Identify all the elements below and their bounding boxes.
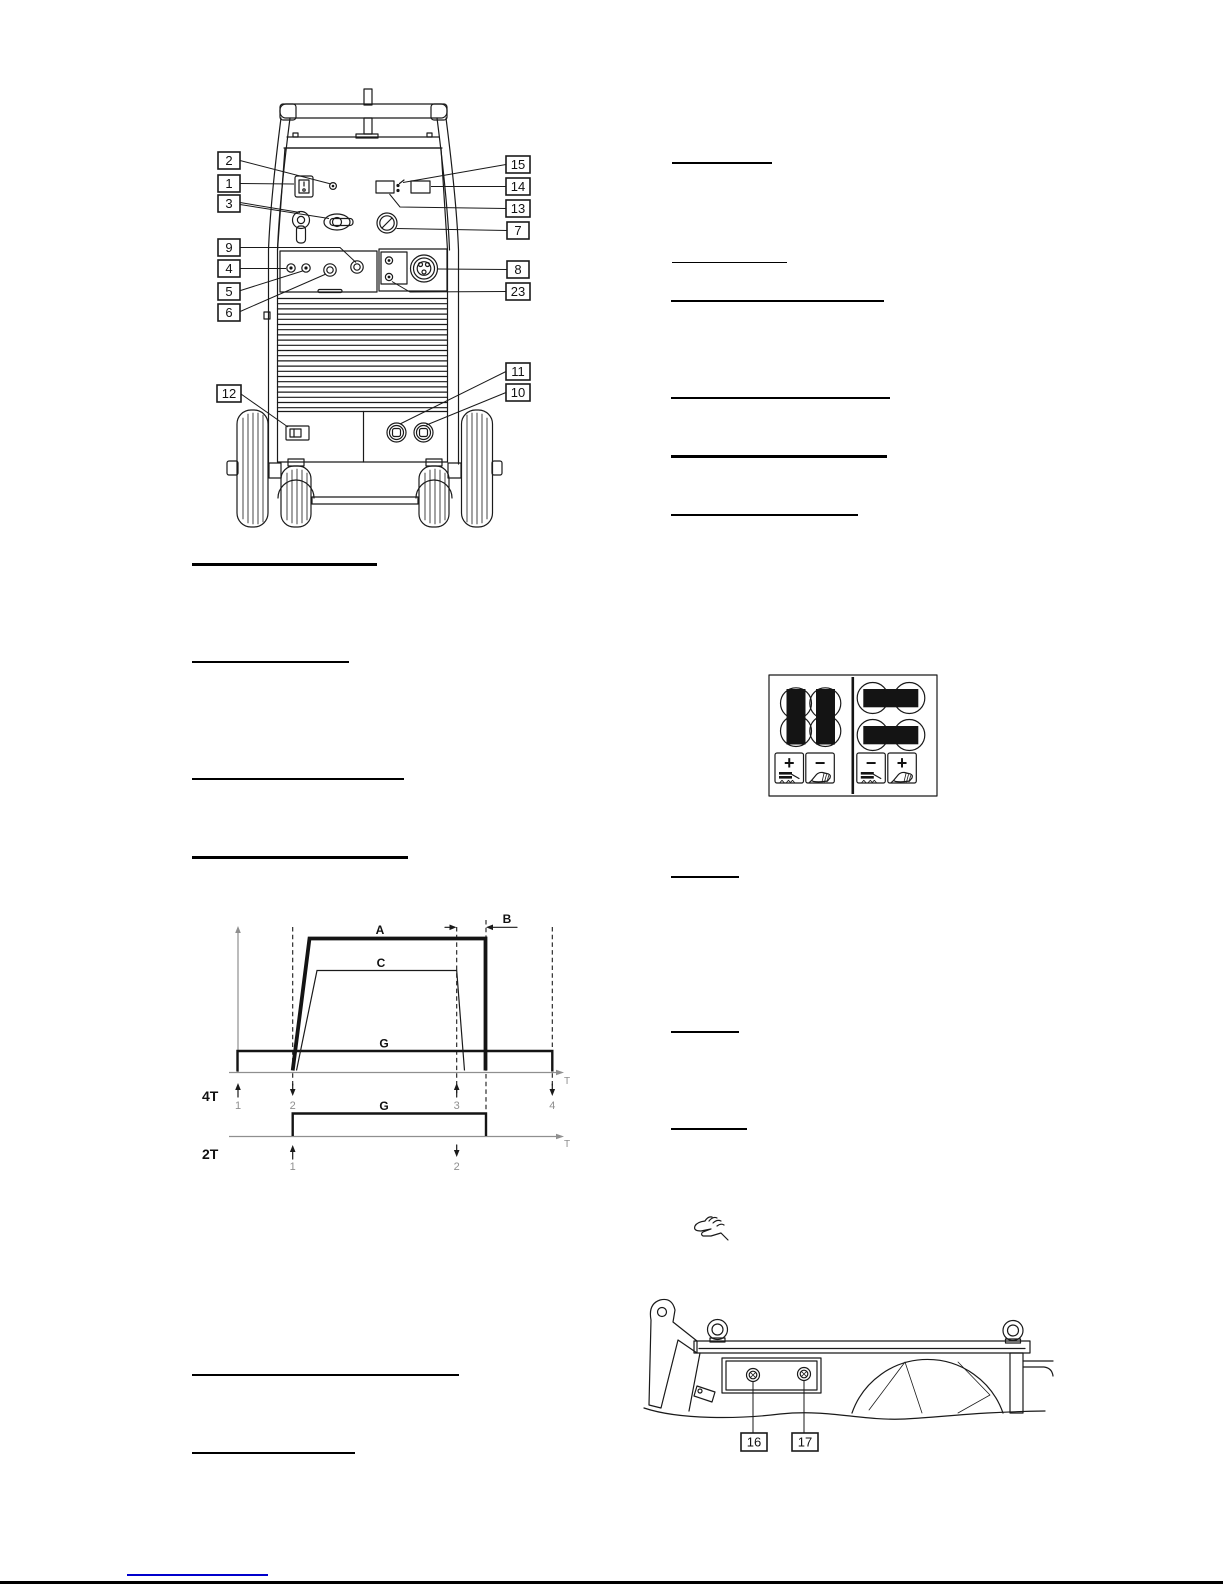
callout-label-8: 8 xyxy=(514,262,521,277)
machine-front-diagram: 2 1 3 9 4 5 6 12 15 14 xyxy=(217,89,530,527)
timing-diagram: A C G B G T T 4T 2T 1 2 3 4 1 2 xyxy=(202,912,570,1173)
torn-edge xyxy=(644,1408,1045,1419)
callout-1: 1 xyxy=(218,175,240,192)
footer-rule xyxy=(0,1581,1223,1584)
wheels xyxy=(227,410,502,527)
marker-4t-4: 4 xyxy=(549,1100,555,1112)
footer-link[interactable] xyxy=(127,1574,268,1576)
polarity-rollers-left xyxy=(781,688,841,747)
curve-c xyxy=(297,971,465,1071)
t-axis-label-lower: T xyxy=(564,1139,570,1150)
heading-rule-right-8 xyxy=(671,1031,739,1033)
machine-cabinet xyxy=(264,148,448,462)
t-axis-label-upper: T xyxy=(564,1076,570,1087)
callout-3: 3 xyxy=(218,195,240,212)
handle-arm xyxy=(649,1299,715,1408)
electrode-icon xyxy=(779,772,799,783)
marker-2t-1: 1 xyxy=(290,1161,296,1173)
heading-rule-left-5 xyxy=(192,1374,459,1376)
callout-9: 9 xyxy=(218,239,240,256)
heading-rule-left-3 xyxy=(192,778,404,780)
dinse-socket-right xyxy=(414,423,433,442)
torch-euro-connector xyxy=(411,255,438,282)
marker-4t-1: 1 xyxy=(235,1100,241,1112)
callout-12: 12 xyxy=(217,385,241,402)
callout-23: 23 xyxy=(506,283,530,300)
callout-13: 13 xyxy=(506,200,530,217)
heading-rule-left-1 xyxy=(192,563,377,566)
marker-4t-2: 2 xyxy=(290,1100,296,1112)
callout-7: 7 xyxy=(507,222,529,239)
polarity-rollers-right xyxy=(857,683,925,751)
base-connector-17 xyxy=(798,1368,811,1381)
mode-4t-label: 4T xyxy=(202,1088,219,1104)
callout-label-13: 13 xyxy=(511,201,525,216)
heading-rule-right-5 xyxy=(671,455,887,458)
polarity-sign-2: − xyxy=(815,753,826,773)
timeline-arrows-2t xyxy=(290,1145,460,1159)
callout-label-5: 5 xyxy=(225,284,232,299)
curve-g-upper-label: G xyxy=(379,1037,388,1051)
callout-label-16: 16 xyxy=(747,1435,761,1450)
electrode-icon xyxy=(861,772,881,783)
manual-page: 2 1 3 9 4 5 6 12 15 14 xyxy=(0,0,1225,1585)
machine-base-diagram: 16 17 xyxy=(644,1299,1053,1451)
lever-knob xyxy=(293,212,310,244)
heading-rule-right-2 xyxy=(672,262,787,264)
callout-label-11: 11 xyxy=(511,364,525,379)
marker-4t-3: 3 xyxy=(454,1100,460,1112)
t-axis-arrow-upper xyxy=(556,1070,564,1076)
callout-label-12: 12 xyxy=(222,386,236,401)
mode-2t-label: 2T xyxy=(202,1146,219,1162)
callout-5: 5 xyxy=(218,283,240,300)
polarity-diagram: + − − + xyxy=(769,675,937,796)
callout-10: 10 xyxy=(506,384,530,401)
heading-rule-left-4 xyxy=(192,856,408,859)
dinse-socket-left xyxy=(387,423,406,442)
callout-label-17: 17 xyxy=(798,1435,812,1450)
polarity-sign-1: + xyxy=(784,753,795,773)
callout-11: 11 xyxy=(506,363,530,380)
callout-6: 6 xyxy=(218,304,240,321)
caster-left xyxy=(278,459,314,527)
rotary-selector xyxy=(324,214,353,230)
callout-16: 16 xyxy=(741,1433,767,1451)
polarity-sign-3: − xyxy=(866,753,877,773)
callout-8: 8 xyxy=(507,261,529,278)
heading-rule-left-2 xyxy=(192,661,349,663)
polarity-sign-4: + xyxy=(897,753,908,773)
heading-rule-right-1 xyxy=(672,162,772,164)
heading-rule-right-6 xyxy=(671,514,858,516)
callout-label-4: 4 xyxy=(225,261,232,276)
curve-c-label: C xyxy=(377,956,386,970)
heading-rule-right-7 xyxy=(671,876,739,878)
curve-g-lower-label: G xyxy=(379,1099,388,1113)
base-connector-16 xyxy=(747,1369,760,1382)
fan-arc xyxy=(852,1359,1003,1413)
wire-inch-switch xyxy=(286,426,309,440)
heading-rule-right-9 xyxy=(671,1128,747,1130)
callout-4: 4 xyxy=(218,260,240,277)
callout-label-3: 3 xyxy=(225,196,232,211)
callout-label-7: 7 xyxy=(514,223,521,238)
callout-label-1: 1 xyxy=(225,176,232,191)
callout-label-10: 10 xyxy=(511,385,525,400)
callout-15: 15 xyxy=(506,156,530,173)
connector-panel xyxy=(280,249,447,293)
heading-rule-right-4 xyxy=(671,397,890,399)
curve-a-label: A xyxy=(376,923,385,937)
callout-label-9: 9 xyxy=(225,240,232,255)
vent-louvres xyxy=(278,299,448,408)
t-axis-arrow-lower xyxy=(556,1134,564,1140)
bottom-panel xyxy=(278,412,448,463)
display-windows xyxy=(376,180,430,193)
callout-label-23: 23 xyxy=(511,284,525,299)
timeline-arrows-4t xyxy=(235,1083,555,1097)
callout-2: 2 xyxy=(218,152,240,169)
caster-right xyxy=(416,459,452,527)
torch-icon xyxy=(891,772,912,782)
callout-label-14: 14 xyxy=(511,179,525,194)
heading-rule-left-6 xyxy=(192,1452,355,1454)
callout-label-2: 2 xyxy=(225,153,232,168)
heading-rule-right-3 xyxy=(671,300,884,302)
base-leader-lines xyxy=(753,1381,804,1433)
torch-icon xyxy=(809,772,830,782)
b-label: B xyxy=(503,912,512,926)
callout-label-15: 15 xyxy=(511,157,525,172)
callout-label-6: 6 xyxy=(225,305,232,320)
hand-icon xyxy=(695,1217,728,1240)
page-line-art: 2 1 3 9 4 5 6 12 15 14 xyxy=(0,0,1225,1585)
marker-2t-2: 2 xyxy=(454,1161,460,1173)
callout-17: 17 xyxy=(792,1433,818,1451)
adjust-knob xyxy=(377,213,397,233)
y-axis-arrow xyxy=(235,926,241,933)
callout-14: 14 xyxy=(506,178,530,195)
